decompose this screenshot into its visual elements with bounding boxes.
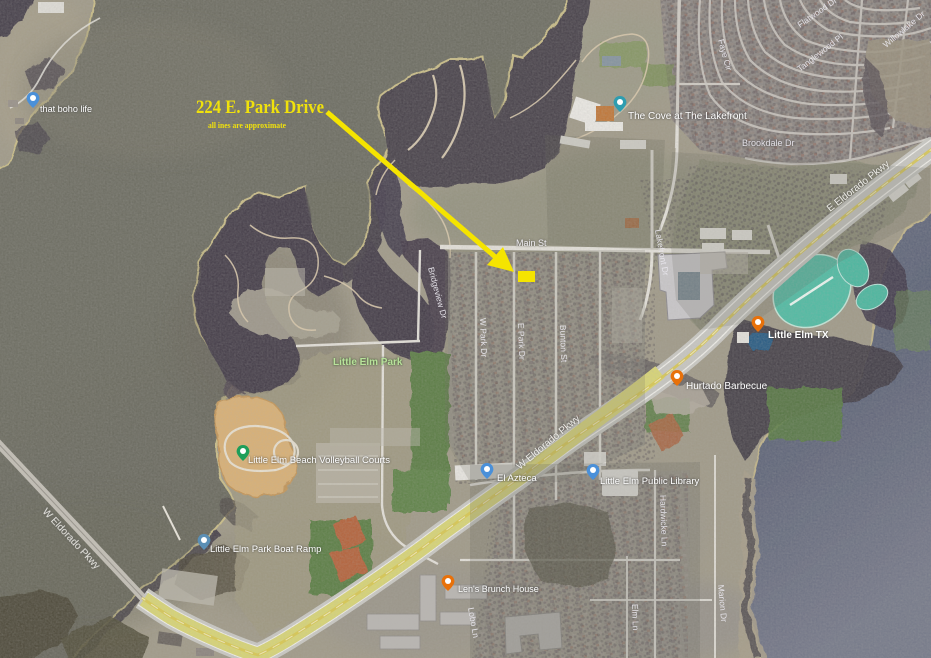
svg-text:W Park Dr: W Park Dr: [478, 318, 489, 358]
svg-text:The Cove at The Lakefront: The Cove at The Lakefront: [628, 111, 747, 122]
svg-text:Little Elm Beach Volleyball Co: Little Elm Beach Volleyball Courts: [248, 455, 390, 466]
svg-text:Little Elm Park: Little Elm Park: [333, 357, 403, 368]
svg-text:Len's Brunch House: Len's Brunch House: [458, 584, 539, 594]
svg-text:224 E. Park Drive: 224 E. Park Drive: [196, 97, 324, 118]
svg-text:Hardwicke Ln: Hardwicke Ln: [658, 495, 670, 547]
svg-text:all ines are approximate: all ines are approximate: [208, 121, 286, 130]
svg-text:Bunton St: Bunton St: [558, 325, 569, 363]
svg-text:Hurtado Barbecue: Hurtado Barbecue: [686, 381, 768, 392]
svg-text:Main St: Main St: [516, 238, 547, 248]
svg-text:Elm Ln: Elm Ln: [630, 604, 641, 631]
svg-text:Little Elm Park Boat Ramp: Little Elm Park Boat Ramp: [210, 544, 321, 555]
svg-text:El Azteca: El Azteca: [497, 473, 537, 484]
svg-text:that boho life: that boho life: [40, 104, 92, 115]
svg-text:Little Elm Public Library: Little Elm Public Library: [600, 476, 700, 487]
svg-text:E Park Dr: E Park Dr: [516, 323, 527, 360]
svg-text:Little Elm TX: Little Elm TX: [768, 330, 829, 341]
svg-text:Brookdale Dr: Brookdale Dr: [742, 138, 795, 148]
